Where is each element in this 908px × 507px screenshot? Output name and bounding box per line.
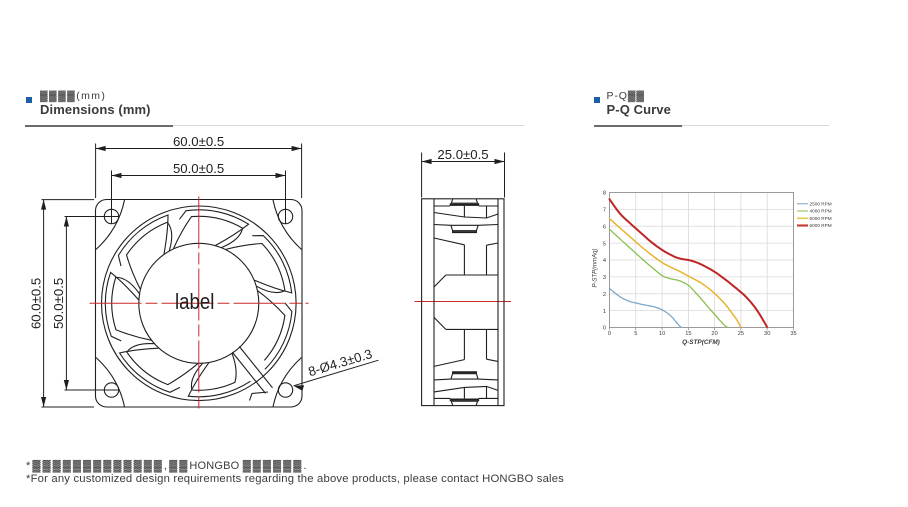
svg-text:25: 25 <box>738 331 744 337</box>
svg-text:Q-STP(CFM): Q-STP(CFM) <box>682 339 720 346</box>
svg-text:8: 8 <box>603 191 606 197</box>
svg-text:3: 3 <box>603 275 606 281</box>
svg-text:1: 1 <box>603 309 606 315</box>
svg-text:4000 RPM: 4000 RPM <box>810 209 832 214</box>
svg-text:2500 RPM: 2500 RPM <box>810 201 832 206</box>
svg-text:25.0±0.5: 25.0±0.5 <box>437 147 488 162</box>
svg-text:10: 10 <box>659 331 665 337</box>
svg-text:8-Ø4.3±0.3: 8-Ø4.3±0.3 <box>307 346 374 379</box>
svg-text:5000 RPM: 5000 RPM <box>810 216 832 221</box>
svg-text:2: 2 <box>603 292 606 298</box>
svg-text:6000 RPM: 6000 RPM <box>810 223 832 228</box>
svg-text:20: 20 <box>711 331 717 337</box>
svg-text:35: 35 <box>790 331 796 337</box>
svg-text:60.0±0.5: 60.0±0.5 <box>29 278 44 329</box>
svg-text:5: 5 <box>603 241 606 247</box>
svg-text:30: 30 <box>764 331 770 337</box>
svg-text:50.0±0.5: 50.0±0.5 <box>51 278 66 329</box>
svg-text:60.0±0.5: 60.0±0.5 <box>173 134 224 149</box>
svg-text:label: label <box>175 289 215 314</box>
svg-text:0: 0 <box>608 331 611 337</box>
svg-text:15: 15 <box>685 331 691 337</box>
svg-text:5: 5 <box>634 331 637 337</box>
svg-text:6: 6 <box>603 224 606 230</box>
svg-text:4: 4 <box>603 258 606 264</box>
svg-text:50.0±0.5: 50.0±0.5 <box>173 161 224 176</box>
svg-text:7: 7 <box>603 208 606 214</box>
svg-text:P-STP(mmAq): P-STP(mmAq) <box>593 248 599 287</box>
svg-text:0: 0 <box>603 326 606 332</box>
